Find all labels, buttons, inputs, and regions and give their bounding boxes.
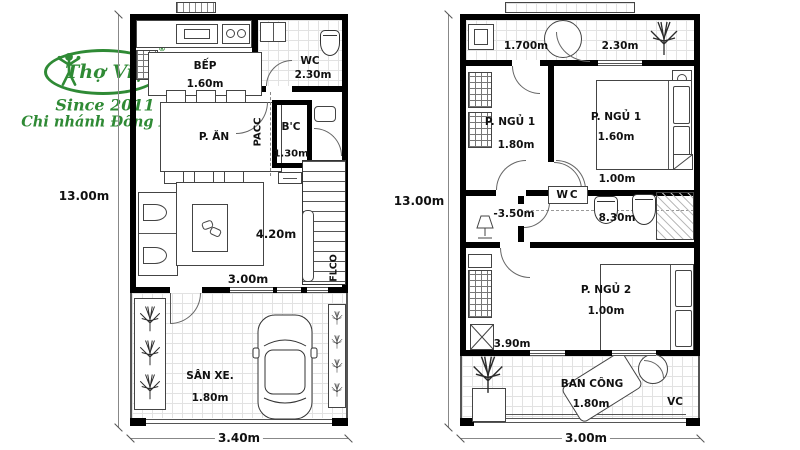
wall [460, 242, 500, 248]
wall [656, 350, 700, 356]
car-icon [252, 312, 318, 422]
wall [272, 100, 312, 105]
plant-icon [329, 329, 345, 353]
balcony-corner-label: VC [667, 396, 683, 408]
wall [686, 418, 700, 426]
wc-dim: 8.30m [599, 212, 636, 224]
railing-line [474, 422, 686, 423]
plant-icon [135, 334, 165, 368]
floor1-dim-bottom: 3.40m [215, 431, 263, 445]
garage-dim: 1.80m [192, 392, 229, 404]
stove-burner-icon [226, 29, 235, 38]
window [307, 287, 328, 293]
chair-icon [166, 90, 186, 103]
garage-label: SÂN XE. [186, 370, 233, 382]
sofa-cushion [143, 247, 167, 264]
washbasin-divider [273, 23, 274, 41]
bedroom1-right-label: P. NGỦ 1 [591, 111, 641, 123]
stair-handrail [302, 210, 314, 282]
flco-label: FLCO [329, 254, 340, 282]
stairs-dim: 4.20m [256, 227, 296, 241]
door-arc [512, 66, 540, 94]
worker-icon [56, 50, 82, 88]
plant-icon [640, 16, 688, 56]
sofa-cushion [143, 204, 167, 221]
floor1-dim-left: 13.00m [56, 189, 112, 203]
shaft-label: PACC [253, 118, 264, 147]
toilet-icon [632, 194, 656, 225]
bedroom2-label: P. NGỦ 2 [581, 284, 631, 296]
storage-dim: 1.30m [273, 149, 308, 160]
wall [460, 190, 496, 196]
bed-line [670, 265, 671, 351]
plant-icon [329, 305, 345, 329]
sofa-line [139, 233, 177, 234]
plant-icon [329, 353, 345, 377]
corner-window-icon [673, 154, 693, 170]
pillow-icon [675, 270, 692, 307]
floor1-plan: BẾP 1.60m WC 2.30m P. ĂN PACC B'C 1.30m [130, 14, 348, 428]
wall [642, 60, 700, 66]
balcony-wall [698, 356, 700, 426]
plant-icon [329, 377, 345, 401]
balcony-wall [460, 356, 462, 426]
plant-icon [135, 300, 165, 334]
window [277, 287, 301, 293]
planter-box [328, 304, 346, 408]
laundry-dim2: 2.30m [602, 40, 639, 52]
bedroom1-right-dim: 1.60m [598, 131, 635, 143]
floorplan-canvas: Thợ Việt ® Since 2011 Chi nhánh Đồng Nai [0, 0, 800, 450]
balcony-label: BAN CÔNG [561, 378, 624, 390]
window [612, 350, 656, 356]
pillow-icon [675, 310, 692, 347]
wall [292, 86, 348, 92]
storage-label: B'C [282, 121, 301, 133]
shelf-icon [468, 254, 492, 268]
pillow-icon [673, 86, 690, 124]
wall [548, 60, 554, 162]
laundry-dim1: 1.700m [504, 40, 548, 52]
kitchen-label: BẾP [194, 60, 217, 72]
garage-wall [346, 293, 348, 424]
door-arc [500, 248, 530, 278]
floor2-dim-left: 13.00m [391, 194, 447, 208]
wall [518, 226, 524, 242]
planter-box [134, 298, 166, 410]
wall [530, 242, 700, 248]
sink-icon [314, 106, 336, 122]
living-dim: 3.00m [228, 272, 268, 286]
wardrobe-icon [468, 72, 492, 108]
window [530, 350, 565, 356]
kitchen-dim: 1.60m [187, 78, 224, 90]
plant-icon [466, 350, 510, 394]
shower-icon [656, 192, 694, 240]
hall-dim: -3.50m [493, 208, 534, 220]
door-arc [314, 128, 342, 156]
planter-band [505, 2, 635, 13]
bedroom1-left-label: P. NGỦ 1 [485, 116, 535, 128]
door-arc [496, 160, 526, 190]
window [230, 287, 273, 293]
vent-line [283, 178, 297, 179]
wall [130, 418, 146, 426]
bedroom2-dim2: 3.90m [494, 338, 531, 350]
plant-icon [135, 368, 165, 402]
wc-dim: 2.30m [295, 69, 332, 81]
washing-machine-door [474, 29, 488, 45]
chair-icon [196, 90, 216, 103]
gate-line [146, 423, 332, 424]
wc-label: WC [300, 55, 319, 67]
floor2-plan: 1.700m 2.30m P. NGỦ 1 1.80m P. NGỦ 1 1.6… [460, 14, 700, 428]
wall [332, 418, 348, 426]
dining-label: P. ĂN [199, 131, 229, 143]
wardrobe-icon [468, 270, 492, 318]
appliance-icon [184, 29, 210, 39]
shaft-line [270, 92, 271, 176]
garage-wall [130, 293, 132, 424]
wall [460, 60, 512, 66]
corner-window-icon [470, 324, 494, 350]
wc-label: WC [556, 189, 579, 201]
dimension-line [448, 14, 449, 428]
wall [565, 350, 612, 356]
stove-burner-icon [237, 29, 246, 38]
balcony-dim: 1.80m [573, 398, 610, 410]
toilet-icon [320, 30, 340, 56]
window [598, 60, 642, 66]
bedroom1-right-dim2: 1.00m [599, 173, 636, 185]
bedroom1-left-dim: 1.80m [498, 139, 535, 151]
bed-line [668, 81, 669, 169]
vent-icon [176, 2, 216, 13]
floor2-dim-bottom: 3.00m [562, 431, 610, 445]
dimension-line [118, 14, 119, 428]
bedroom2-dim: 1.00m [588, 305, 625, 317]
